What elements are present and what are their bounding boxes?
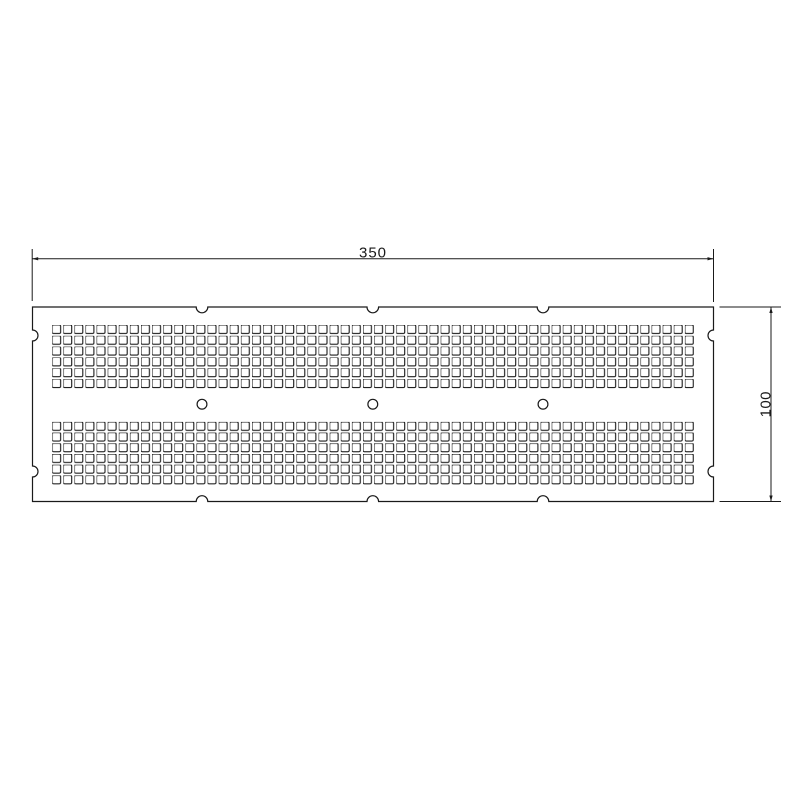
svg-text:350: 350 bbox=[359, 245, 387, 262]
svg-text:100: 100 bbox=[758, 391, 775, 417]
